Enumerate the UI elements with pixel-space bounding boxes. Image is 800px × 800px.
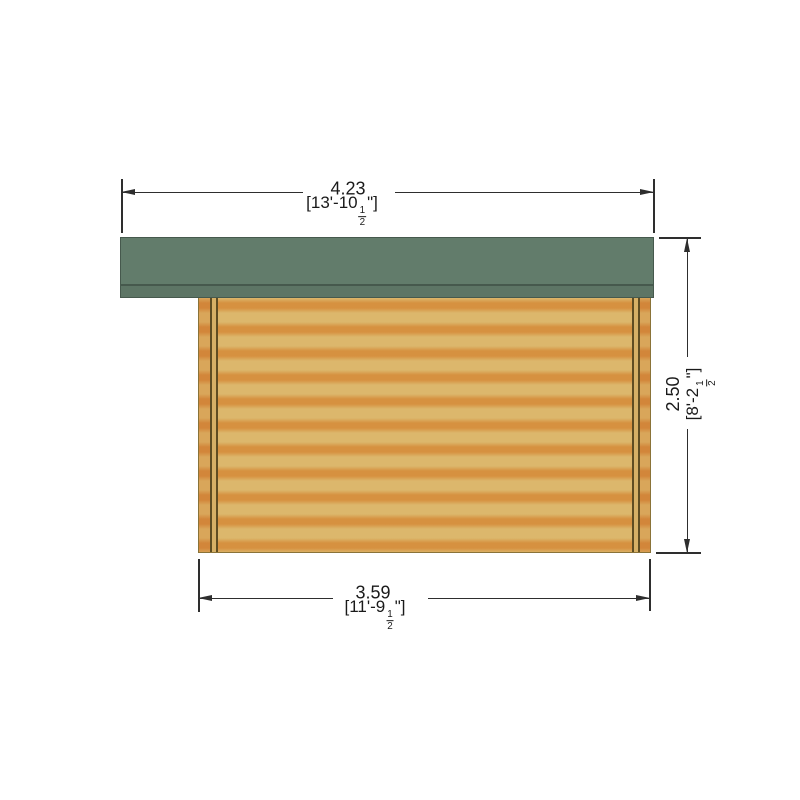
log-ends-left — [199, 298, 210, 552]
top-dimension-extension-line-left — [121, 179, 123, 233]
bottom-dimension-arrow-right — [636, 595, 650, 601]
right-dimension-line-top-segment — [687, 238, 689, 357]
bottom-dimension-extension-line-right — [649, 559, 651, 611]
top-dimension-imperial-prefix: [13'-10 — [306, 193, 357, 212]
right-dimension-imperial-suffix: "] — [683, 368, 702, 379]
bottom-dimension-imperial-prefix: [11'-9 — [345, 597, 386, 616]
top-dimension-arrow-left — [121, 189, 135, 195]
right-dimension-arrow-up — [684, 238, 690, 252]
corner-groove-right — [632, 298, 640, 552]
right-dimension-extension-line-top — [659, 237, 701, 239]
fraction-numerator: 1 — [696, 379, 707, 386]
right-dimension-arrow-down — [684, 539, 690, 553]
timber-wall — [198, 298, 651, 553]
right-dimension-imperial-prefix: [8'-2 — [683, 388, 702, 421]
top-dimension-imperial-label: [13'-1012"] — [306, 193, 378, 229]
fraction-denominator: 2 — [708, 380, 719, 385]
top-dimension-imperial-fraction: 12 — [359, 206, 366, 229]
bottom-dimension-extension-line-left — [198, 559, 200, 612]
right-dimension-extension-line-bottom — [656, 552, 701, 554]
bottom-dimension-imperial-fraction: 12 — [386, 610, 393, 633]
right-dimension-metric-value: 2.50 — [663, 376, 683, 411]
top-dimension-line-left-segment — [121, 192, 303, 194]
fraction-denominator: 2 — [387, 622, 392, 633]
bottom-dimension-arrow-left — [198, 595, 212, 601]
top-dimension-arrow-right — [640, 189, 654, 195]
roof-panel — [120, 237, 654, 298]
bottom-dimension-imperial-suffix: "] — [395, 597, 406, 616]
bottom-dimension-line-left-segment — [198, 598, 333, 600]
log-ends-right — [640, 298, 650, 552]
corner-groove-left — [210, 298, 218, 552]
elevation-drawing: 4.23 [13'-1012"] 2.50 [8'-212"] — [0, 0, 800, 800]
fraction-denominator: 2 — [360, 218, 365, 229]
right-dimension-metric-label: 2.50 — [663, 368, 683, 421]
roof-fascia — [121, 284, 653, 297]
right-dimension-imperial-label: [8'-212"] — [683, 368, 719, 421]
top-dimension-line-right-segment — [395, 192, 654, 194]
bottom-dimension-imperial-label: [11'-912"] — [345, 597, 406, 633]
fraction-numerator: 1 — [359, 206, 366, 217]
right-dimension-imperial-fraction: 12 — [696, 379, 719, 386]
right-dimension-label: 2.50 [8'-212"] — [663, 368, 719, 421]
bottom-dimension-line-right-segment — [428, 598, 650, 600]
right-dimension-line-bottom-segment — [687, 429, 689, 553]
top-dimension-imperial-suffix: "] — [367, 193, 378, 212]
top-dimension-extension-line-right — [653, 179, 655, 233]
fraction-numerator: 1 — [386, 610, 393, 621]
